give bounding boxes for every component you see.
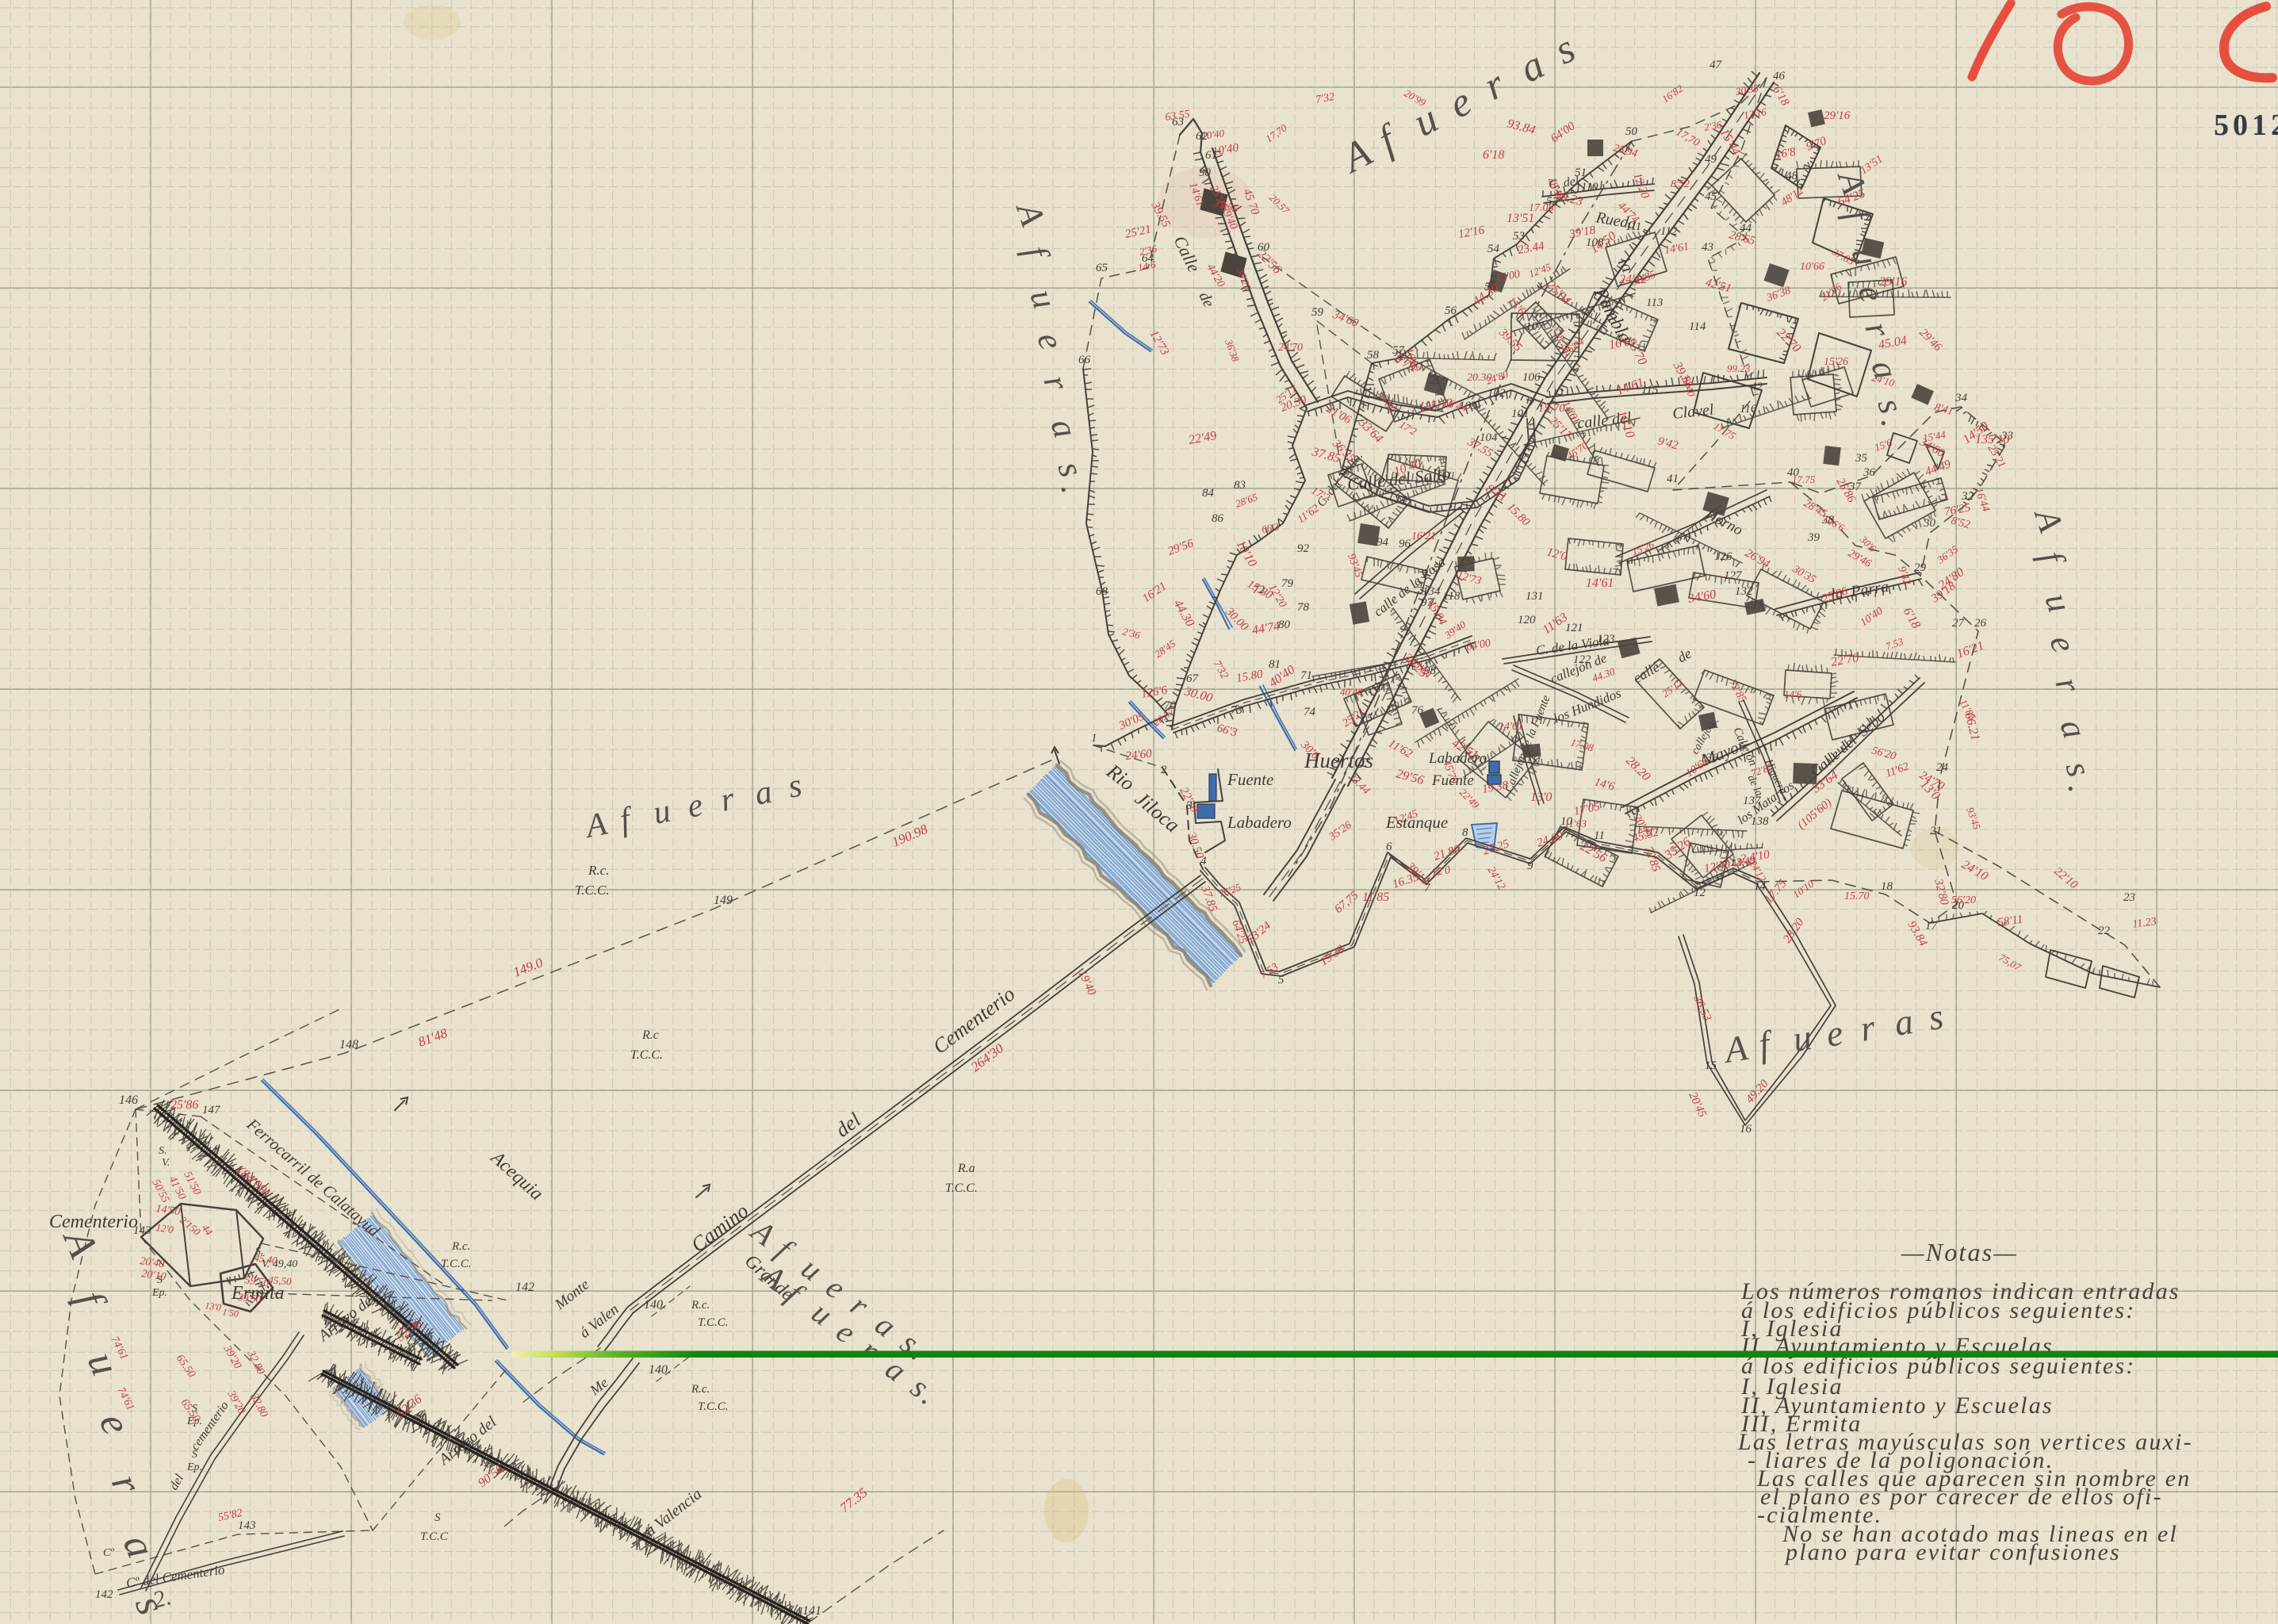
svg-text:4: 4 [1200,855,1207,868]
svg-text:36: 36 [1863,466,1876,479]
svg-text:15: 15 [1705,1059,1717,1072]
svg-text:132: 132 [1735,585,1753,598]
svg-text:84: 84 [1202,487,1215,500]
svg-text:40'40: 40'40 [1340,686,1363,698]
svg-text:45,50: 45,50 [268,1274,293,1288]
svg-text:T.C.C.: T.C.C. [698,1316,729,1329]
svg-text:T.C.C.: T.C.C. [945,1182,978,1195]
svg-text:Fuente: Fuente [1227,770,1273,789]
svg-text:143: 143 [133,1224,151,1237]
svg-text:15'26: 15'26 [1824,356,1848,368]
svg-text:Estanque: Estanque [1385,813,1448,832]
svg-text:11: 11 [1594,829,1605,842]
svg-text:49: 49 [1705,153,1717,166]
svg-text:120: 120 [1518,614,1536,626]
svg-text:53: 53 [1513,230,1525,243]
svg-text:1: 1 [1091,732,1097,745]
svg-text:6: 6 [1386,841,1392,853]
svg-text:39'50: 39'50 [237,1291,262,1305]
svg-text:V.: V. [162,1157,170,1169]
svg-text:94: 94 [1376,536,1389,549]
svg-text:17.08: 17.08 [1529,202,1554,214]
svg-text:Labadero: Labadero [1227,813,1292,832]
svg-text:14'61: 14'61 [1586,576,1614,590]
svg-text:13'0: 13'0 [205,1300,222,1313]
svg-text:24'12: 24'12 [1619,273,1647,286]
svg-text:140.: 140. [644,1298,666,1312]
svg-text:143: 143 [238,1519,256,1532]
svg-text:63: 63 [1172,116,1184,128]
svg-text:T.C.C: T.C.C [420,1530,449,1543]
svg-text:T.C.C.: T.C.C. [630,1048,663,1062]
svg-text:74: 74 [1304,706,1316,718]
svg-text:R.c: R.c [641,1028,659,1042]
svg-text:149: 149 [714,894,733,907]
svg-text:1'50: 1'50 [222,1306,239,1319]
svg-text:T.C.C.: T.C.C. [698,1400,729,1413]
svg-text:122: 122 [1573,653,1591,666]
svg-text:140.: 140. [649,1363,671,1377]
svg-text:73: 73 [1231,704,1242,717]
svg-text:137: 137 [1743,795,1762,807]
svg-text:13'0: 13'0 [1530,791,1552,804]
svg-text:6'18: 6'18 [1483,148,1504,162]
svg-text:29: 29 [1914,561,1927,574]
svg-text:101: 101 [1511,408,1530,420]
svg-text:R.c.: R.c. [451,1240,470,1253]
svg-text:24: 24 [1936,761,1949,774]
svg-text:59: 59 [1311,306,1324,319]
svg-text:23: 23 [2123,891,2135,904]
svg-text:102: 102 [1487,387,1506,400]
svg-text:90: 90 [1199,167,1212,179]
svg-text:56'20: 56'20 [1951,894,1976,906]
svg-text:141: 141 [802,1604,821,1618]
svg-text:16: 16 [1740,1123,1752,1136]
svg-text:47: 47 [1709,59,1723,71]
svg-text:76: 76 [1411,704,1424,717]
svg-text:17.75: 17.75 [1792,473,1816,485]
svg-text:107: 107 [1526,320,1545,333]
svg-text:110: 110 [1581,181,1598,193]
svg-text:112: 112 [1660,225,1678,238]
svg-text:21: 21 [1930,825,1942,837]
svg-text:86: 86 [1212,512,1224,525]
svg-text:50: 50 [1625,125,1638,138]
svg-text:134: 134 [1422,585,1441,598]
svg-text:66: 66 [1078,354,1091,366]
svg-text:106: 106 [1522,371,1541,384]
svg-text:S.: S. [159,1145,167,1157]
svg-text:116: 116 [1740,403,1757,416]
svg-text:R.c.: R.c. [691,1383,710,1396]
svg-text:81: 81 [1269,658,1281,671]
svg-text:61: 61 [1205,149,1217,162]
svg-text:79: 79 [1281,577,1294,590]
svg-text:R.c.: R.c. [691,1299,710,1312]
svg-text:12: 12 [1694,887,1706,899]
svg-text:58: 58 [1367,349,1380,362]
svg-text:26: 26 [1974,617,1987,630]
svg-text:29'16: 29'16 [1824,109,1851,122]
svg-text:10'66: 10'66 [1800,261,1824,273]
svg-text:142: 142 [515,1281,534,1294]
svg-text:24'70: 24'70 [1278,342,1303,354]
svg-text:41: 41 [1667,473,1679,485]
svg-text:R.c.: R.c. [588,863,609,878]
svg-text:17: 17 [1925,920,1939,933]
svg-text:64: 64 [1142,252,1154,265]
svg-text:62: 62 [1196,130,1208,143]
svg-text:R.a: R.a [957,1162,975,1175]
svg-text:121: 121 [1565,622,1583,634]
svg-text:25'86: 25'86 [170,1098,198,1112]
svg-text:114: 114 [1689,320,1706,333]
svg-text:127: 127 [1724,569,1743,582]
svg-text:126: 126 [1714,550,1732,563]
svg-text:123: 123 [1597,633,1615,645]
svg-text:83: 83 [1234,479,1246,492]
svg-text:68: 68 [1096,585,1108,598]
svg-text:51: 51 [1575,167,1587,179]
svg-text:48: 48 [1786,170,1798,182]
svg-text:67: 67 [1186,672,1200,685]
svg-text:92: 92 [1297,542,1310,555]
svg-text:142: 142 [95,1588,113,1601]
svg-text:32: 32 [1961,490,1974,503]
svg-text:22: 22 [2098,925,2111,937]
svg-text:Fuente: Fuente [1431,772,1474,789]
svg-text:plano para evitar confusiones: plano para evitar confusiones [1784,1539,2121,1565]
svg-text:65: 65 [1096,262,1108,274]
svg-text:71: 71 [1300,669,1312,682]
svg-text:11'85: 11'85 [1362,891,1389,904]
svg-text:148: 148 [339,1038,358,1051]
svg-text:43: 43 [1702,241,1713,254]
svg-text:30: 30 [1923,517,1936,530]
svg-text:146: 146 [119,1094,138,1107]
svg-text:42: 42 [1751,381,1763,393]
svg-text:2: 2 [1161,764,1167,776]
svg-text:78: 78 [1297,601,1310,614]
svg-text:Ep.: Ep. [186,1461,202,1473]
svg-text:34: 34 [1954,392,1968,404]
svg-text:45: 45 [1705,190,1717,203]
svg-text:138: 138 [1751,815,1769,828]
svg-text:11'63: 11'63 [1564,818,1587,829]
svg-text:56: 56 [1445,304,1457,317]
svg-text:46: 46 [1773,70,1786,82]
svg-text:T.C.C.: T.C.C. [575,883,610,898]
svg-text:Ep.: Ep. [151,1287,167,1299]
svg-text:18: 18 [1881,880,1893,893]
svg-text:12'0: 12'0 [155,1221,175,1235]
svg-text:14'6: 14'6 [1784,688,1802,700]
svg-text:—Notas—: —Notas— [1901,1238,2018,1266]
svg-text:15.70: 15.70 [1844,891,1870,902]
svg-text:113: 113 [1646,297,1663,309]
svg-text:5: 5 [1278,974,1284,986]
svg-text:8'52: 8'52 [1671,178,1690,190]
svg-text:131: 131 [1526,590,1544,603]
svg-text:14'61: 14'61 [1499,721,1523,733]
svg-text:Labadero: Labadero [1428,750,1487,767]
svg-text:118: 118 [1443,590,1461,603]
svg-text:54: 54 [1487,243,1500,255]
svg-text:S: S [435,1511,441,1524]
svg-text:16'21: 16'21 [1411,530,1436,542]
svg-text:8: 8 [1462,826,1468,839]
svg-text:35: 35 [1855,452,1868,465]
svg-text:39: 39 [1807,531,1820,544]
svg-text:27: 27 [1952,617,1966,630]
svg-text:96: 96 [1399,538,1411,550]
svg-text:Cº: Cº [103,1547,114,1559]
svg-text:Huertos: Huertos [1304,749,1373,772]
svg-text:5012: 5012 [2214,109,2278,142]
svg-text:S: S [192,1449,197,1461]
svg-text:3: 3 [1185,799,1193,812]
svg-text:99.23: 99.23 [1727,362,1751,374]
svg-text:9: 9 [1527,860,1533,872]
svg-text:147: 147 [202,1104,221,1116]
svg-text:T.C.C.: T.C.C. [441,1258,472,1270]
